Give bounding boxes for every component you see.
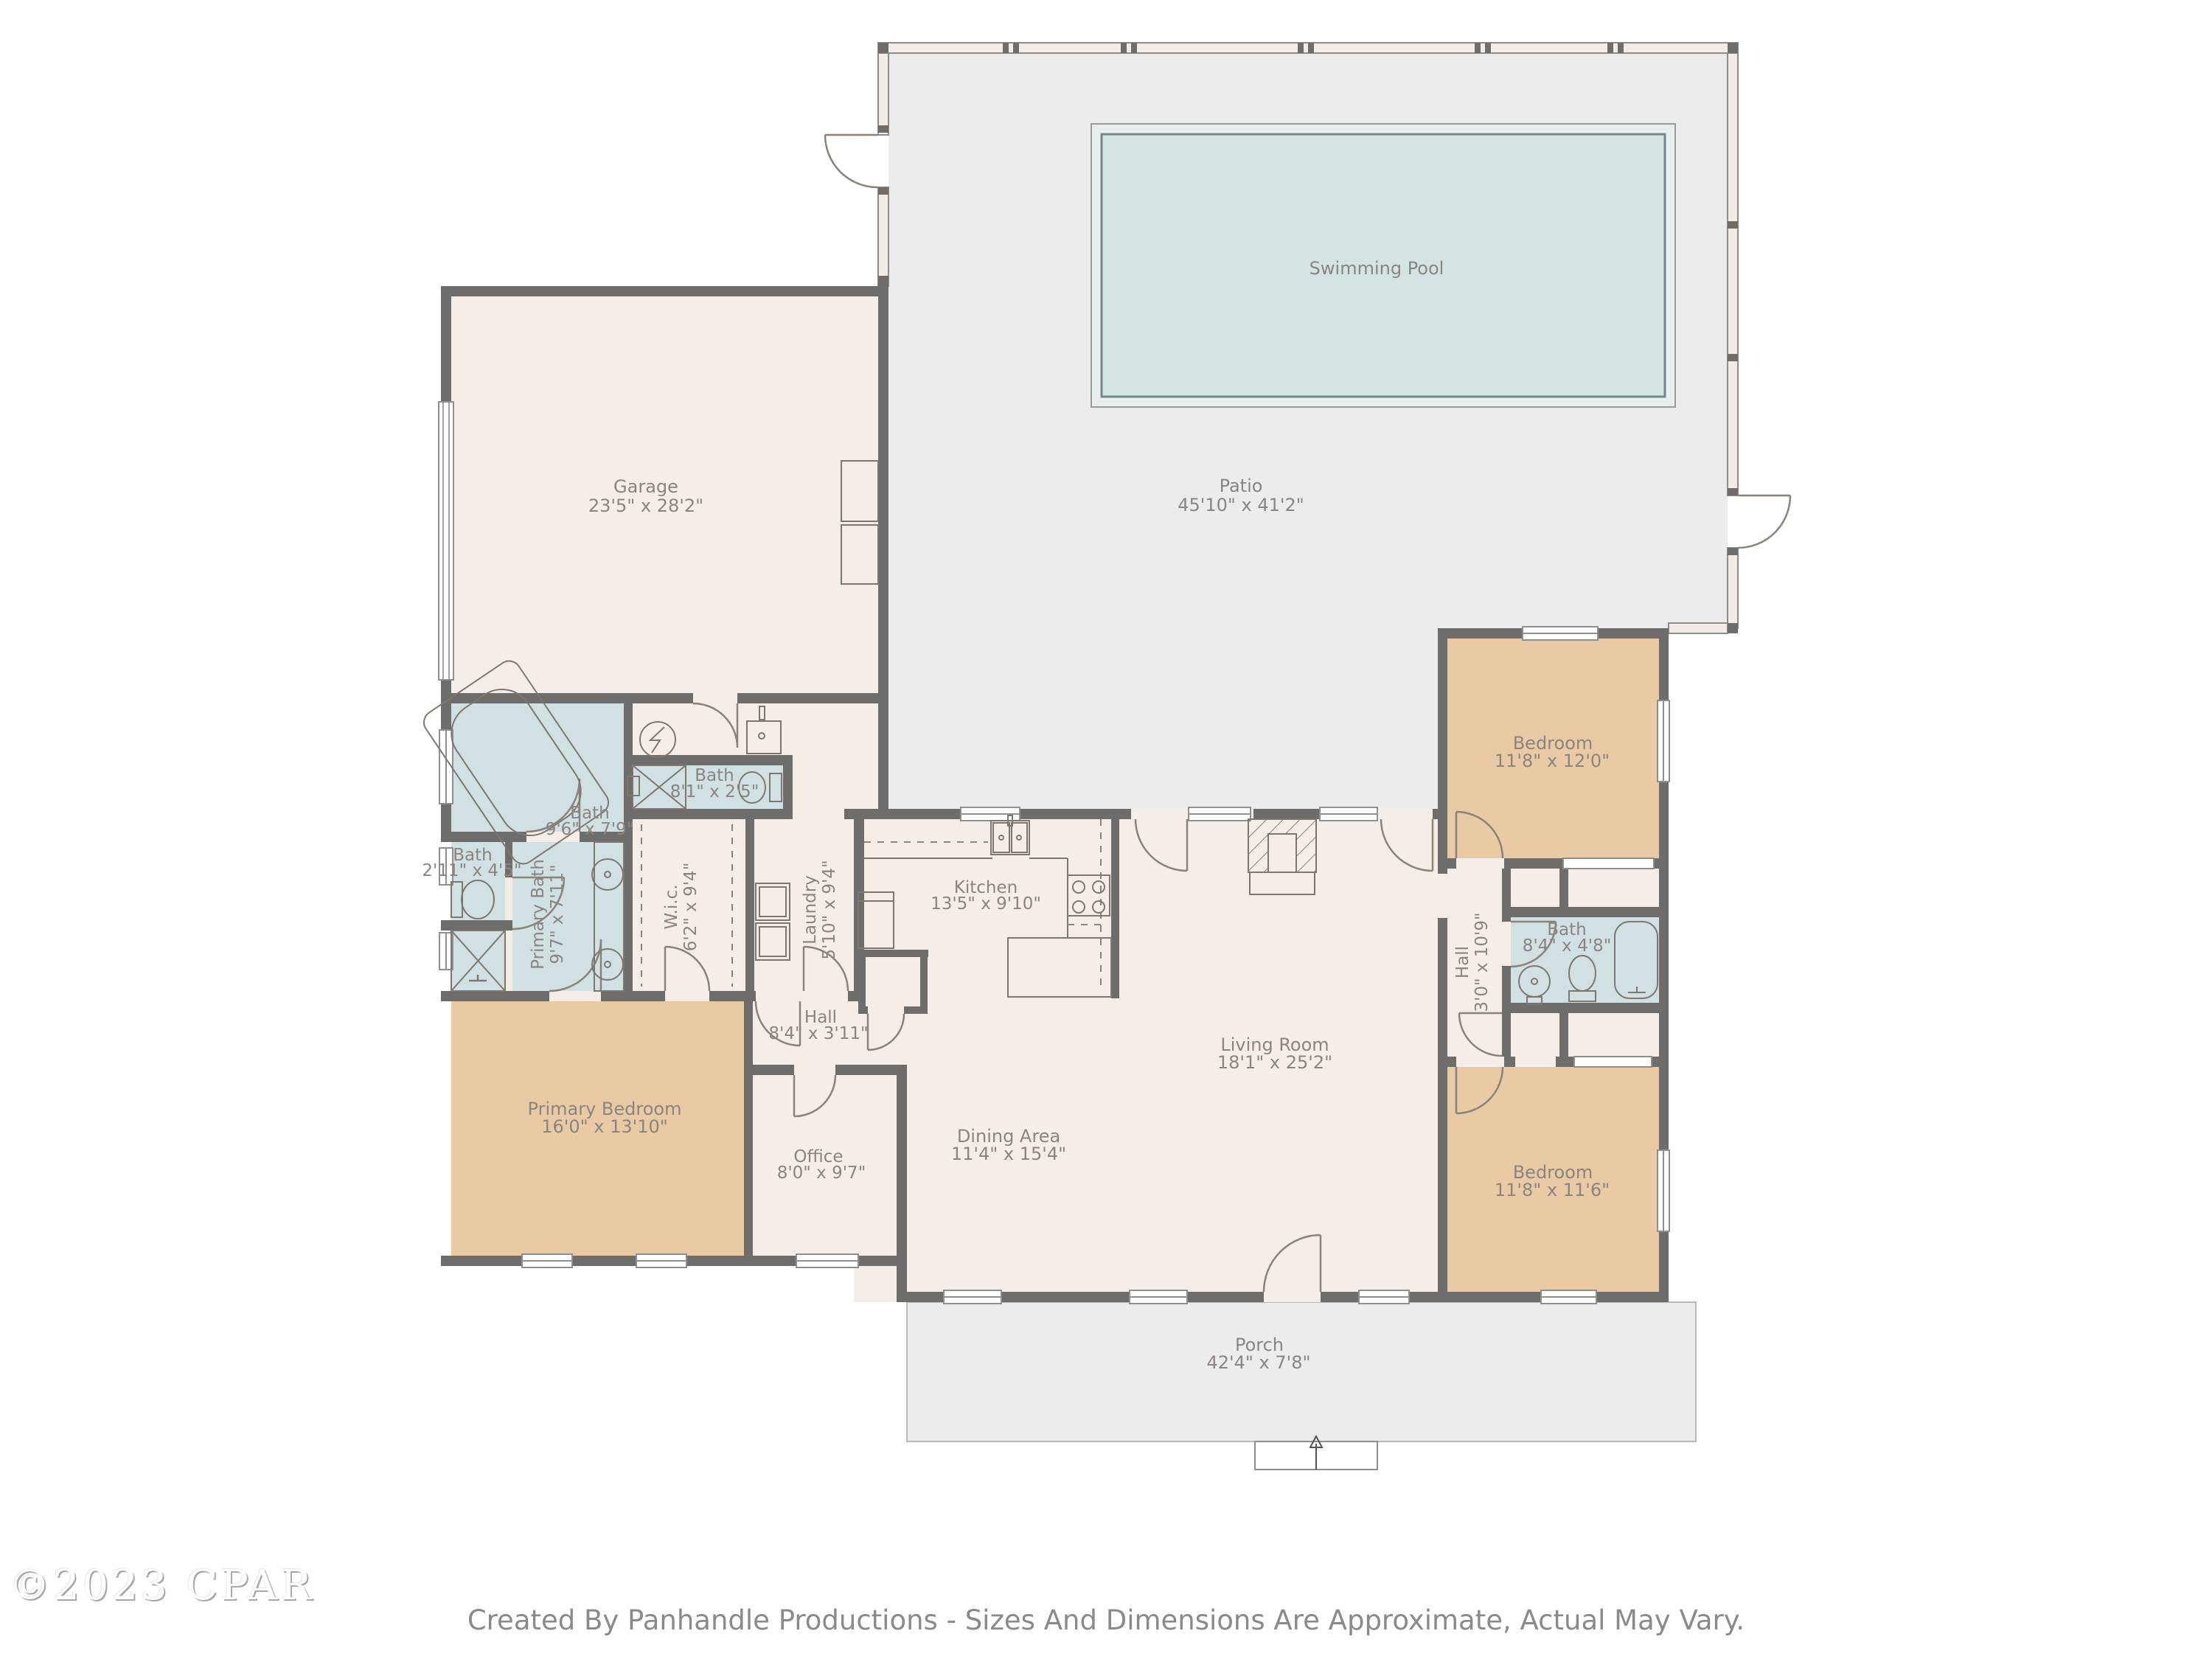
window [1541,1290,1596,1304]
label-primary-bath-dims: 9'7" x 7'11" [548,864,567,964]
label-patio-dims: 45'10" x 41'2" [1178,495,1304,515]
label-hall-bedrooms: Hall [1453,946,1472,978]
label-bath-main-dims: 9'6" x 7'9" [546,820,635,839]
label-dining-dims: 11'4" x 15'4" [951,1144,1066,1164]
label-wic: W.i.c. [662,884,681,929]
window [1658,700,1669,782]
label-office-dims: 8'0" x 9'7" [777,1164,866,1183]
window [636,1254,686,1267]
window [1320,807,1377,821]
label-garage-dims: 23'5" x 28'2" [588,495,703,516]
closet-opening [1563,858,1654,869]
window [796,1254,858,1267]
label-pool: Swimming Pool [1310,258,1444,279]
label-bedroom-bottom-dims: 11'8" x 11'6" [1495,1180,1610,1200]
label-porch-dims: 42'4" x 7'8" [1206,1352,1310,1373]
window [1359,1290,1409,1304]
label-hall-dims: 8'4" x 3'11" [768,1024,868,1043]
floor-plan-drawing: Swimming Pool Patio 45'10" x 41'2" Garag… [0,0,2212,1659]
label-bath-garage-dims: 8'1" x 2'5" [670,782,759,801]
label-bath-hall-dims: 8'4" x 4'8" [1523,936,1612,956]
closet-opening [1574,1057,1652,1067]
wall-opening [1438,874,1447,918]
label-wic-dims: 6'2" x 9'4" [681,863,700,952]
screen-door-left-icon [825,135,877,187]
window [1523,627,1598,640]
screen-door-right-icon [1738,495,1790,548]
window [522,1254,572,1267]
label-primary-bedroom-dims: 16'0" x 13'10" [541,1116,668,1137]
label-living-dims: 18'1" x 25'2" [1217,1052,1332,1073]
window [1658,1150,1669,1231]
label-kitchen-dims: 13'5" x 9'10" [931,894,1041,914]
window [1189,807,1251,821]
garage-door-icon [439,402,453,680]
label-primary-bath: Primary Bath [529,859,548,970]
label-bedroom-top-dims: 11'8" x 12'0" [1495,751,1610,771]
window [944,1290,1001,1304]
watermark: ©2023 CPAR [9,1562,314,1610]
label-bath-small-dims: 2'11" x 4'5" [422,861,521,880]
label-laundry: Laundry [801,875,820,945]
footer-credit: Created By Panhandle Productions - Sizes… [0,1604,2212,1636]
floor-plan: Swimming Pool Patio 45'10" x 41'2" Garag… [0,0,2212,1659]
label-laundry-dims: 5'10" x 9'4" [820,860,839,959]
window [1130,1290,1187,1304]
porch-steps-icon [1255,1436,1377,1470]
label-patio: Patio [1220,476,1263,496]
label-garage: Garage [613,476,678,497]
window [961,807,1020,821]
label-hall-bedrooms-dims: 3'0" x 10'9" [1472,912,1492,1012]
